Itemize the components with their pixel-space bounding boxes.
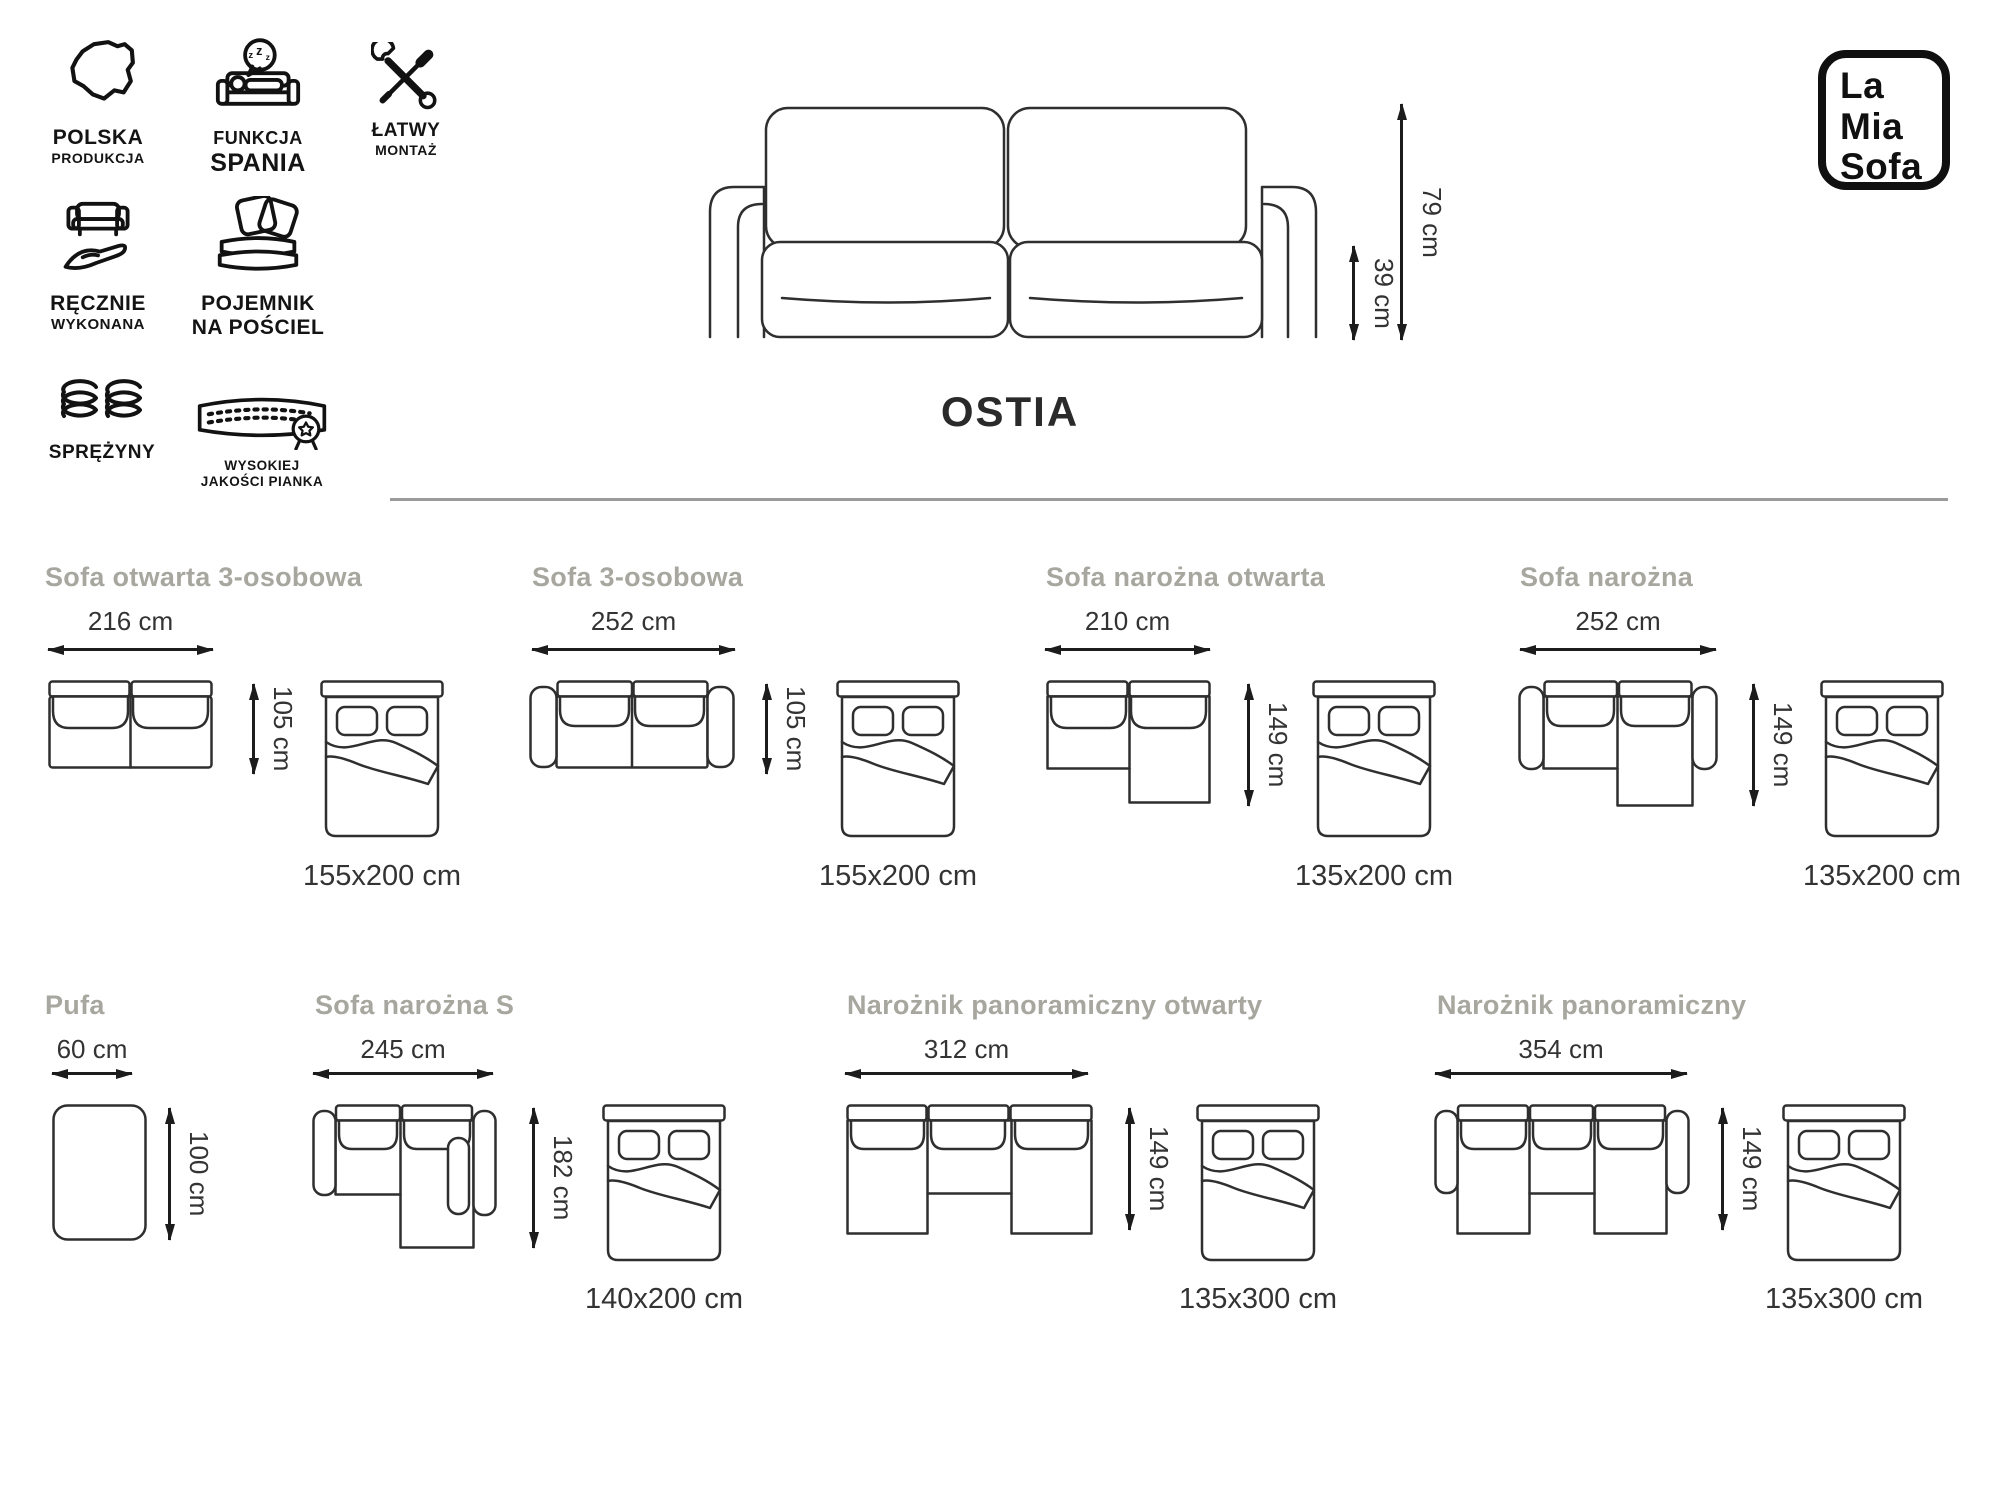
width-dim-label: 252 cm (532, 606, 735, 637)
bed-drawing (1820, 680, 1944, 840)
handmade-icon (54, 200, 142, 284)
springs-icon (54, 376, 150, 434)
bed-drawing (320, 680, 444, 840)
bed-drawing (1312, 680, 1436, 840)
sleep-function-icon: z z z (214, 36, 302, 120)
sofa-front-view-drawing (688, 92, 1338, 347)
feature-label: WYSOKIEJ (224, 458, 299, 474)
pouf-top-view-drawing (52, 1104, 147, 1241)
width-dim-arrow (1045, 648, 1210, 651)
feature-label: POLSKA (53, 126, 144, 150)
width-dim-label: 312 cm (845, 1034, 1088, 1065)
variant-title: Sofa narożna otwarta (1046, 562, 1325, 593)
width-dim-label: 216 cm (48, 606, 213, 637)
variant-title: Narożnik panoramiczny otwarty (847, 990, 1262, 1021)
bed-drawing (1196, 1104, 1320, 1264)
feature-funkcja-spania: z z z FUNKCJA SPANIA (188, 36, 328, 177)
bed-drawing (836, 680, 960, 840)
variant-title: Sofa narożna (1520, 562, 1693, 593)
depth-dim-arrow (1752, 684, 1755, 806)
bed-drawing (602, 1104, 726, 1264)
depth-dim-arrow (252, 684, 255, 774)
depth-dim-label: 182 cm (544, 1108, 578, 1248)
bed-size-label: 135x300 cm (1754, 1283, 1934, 1316)
feature-sublabel: PRODUKCJA (51, 150, 144, 166)
variant-title: Narożnik panoramiczny (1437, 990, 1746, 1021)
feature-pojemnik-na-posciel: POJEMNIK NA POŚCIEL (183, 196, 333, 340)
depth-dim-arrow (168, 1108, 171, 1240)
bed-size-label: 135x200 cm (1284, 860, 1464, 893)
foam-quality-icon (186, 384, 338, 450)
depth-dim-label: 149 cm (1259, 684, 1293, 806)
width-dim-label: 354 cm (1435, 1034, 1687, 1065)
width-dim-arrow (52, 1072, 132, 1075)
width-dim-arrow (532, 648, 735, 651)
feature-label: POJEMNIK (201, 292, 315, 316)
easy-assembly-tools-icon (371, 42, 441, 112)
bed-size-label: 155x200 cm (808, 860, 988, 893)
height-dim-arrow (1400, 104, 1403, 340)
depth-dim-arrow (1721, 1108, 1724, 1230)
bed-size-label: 135x200 cm (1792, 860, 1972, 893)
feature-sublabel: SPANIA (210, 149, 306, 178)
depth-dim-label: 100 cm (180, 1108, 214, 1240)
brand-logo-line: Mia (1840, 107, 1942, 148)
variant-title: Pufa (45, 990, 105, 1021)
feature-label: ŁATWY (372, 120, 441, 142)
bedding-container-icon (212, 196, 304, 284)
svg-text:z: z (266, 52, 270, 62)
brand-logo: La Mia Sofa (1818, 50, 1950, 190)
sofa-top-view-drawing (529, 680, 735, 770)
seat-height-dim-arrow (1352, 246, 1355, 340)
brand-logo-line: La (1840, 66, 1942, 107)
width-dim-arrow (313, 1072, 493, 1075)
sofa-top-view-drawing (1518, 680, 1718, 808)
depth-dim-label: 105 cm (777, 678, 811, 780)
depth-dim-arrow (1247, 684, 1250, 806)
feature-polska-produkcja: POLSKA PRODUKCJA (27, 36, 169, 166)
section-divider (390, 498, 1948, 501)
feature-sublabel: JAKOŚCI PIANKA (201, 474, 324, 490)
product-name: OSTIA (860, 388, 1160, 436)
sofa-top-view-drawing (846, 1104, 1093, 1236)
depth-dim-arrow (765, 684, 768, 774)
depth-dim-label: 149 cm (1140, 1108, 1174, 1230)
feature-label: FUNKCJA (213, 128, 303, 149)
bed-size-label: 155x200 cm (292, 860, 472, 893)
width-dim-label: 245 cm (313, 1034, 493, 1065)
width-dim-arrow (1435, 1072, 1687, 1075)
feature-recznie-wykonana: RĘCZNIE WYKONANA (27, 200, 169, 333)
sofa-top-view-drawing (312, 1104, 497, 1250)
feature-sprezyny: SPRĘŻYNY (32, 376, 172, 464)
feature-latwy-montaz: ŁATWY MONTAŻ (348, 42, 464, 158)
sofa-top-view-drawing (48, 680, 213, 770)
depth-dim-label: 149 cm (1764, 684, 1798, 806)
sofa-top-view-drawing (1434, 1104, 1690, 1236)
feature-wysokiej-jakosci-pianka: WYSOKIEJ JAKOŚCI PIANKA (180, 384, 344, 489)
depth-dim-label: 105 cm (264, 678, 298, 780)
height-dim-label: 79 cm (1413, 104, 1447, 340)
bed-size-label: 135x300 cm (1168, 1283, 1348, 1316)
feature-sublabel: MONTAŻ (375, 142, 437, 158)
width-dim-arrow (845, 1072, 1088, 1075)
svg-text:z: z (256, 44, 262, 58)
svg-text:z: z (248, 50, 253, 61)
bed-drawing (1782, 1104, 1906, 1264)
width-dim-label: 252 cm (1520, 606, 1716, 637)
variant-title: Sofa otwarta 3-osobowa (45, 562, 362, 593)
feature-label: SPRĘŻYNY (49, 442, 155, 464)
brand-logo-line: Sofa (1840, 147, 1942, 188)
bed-size-label: 140x200 cm (574, 1283, 754, 1316)
width-dim-label: 210 cm (1045, 606, 1210, 637)
width-dim-label: 60 cm (52, 1034, 132, 1065)
spec-sheet: POLSKA PRODUKCJA z z z FUNKCJA SPANIA (0, 0, 2000, 1500)
feature-label: RĘCZNIE (50, 292, 146, 316)
depth-dim-label: 149 cm (1733, 1108, 1767, 1230)
feature-sublabel: WYKONANA (51, 316, 145, 333)
seat-height-dim-label: 39 cm (1365, 240, 1399, 346)
sofa-top-view-drawing (1046, 680, 1211, 804)
variant-title: Sofa narożna S (315, 990, 514, 1021)
depth-dim-arrow (1128, 1108, 1131, 1230)
width-dim-arrow (48, 648, 213, 651)
feature-sublabel: NA POŚCIEL (192, 316, 325, 340)
depth-dim-arrow (532, 1108, 535, 1248)
variant-title: Sofa 3-osobowa (532, 562, 743, 593)
width-dim-arrow (1520, 648, 1716, 651)
poland-map-icon (57, 36, 139, 118)
